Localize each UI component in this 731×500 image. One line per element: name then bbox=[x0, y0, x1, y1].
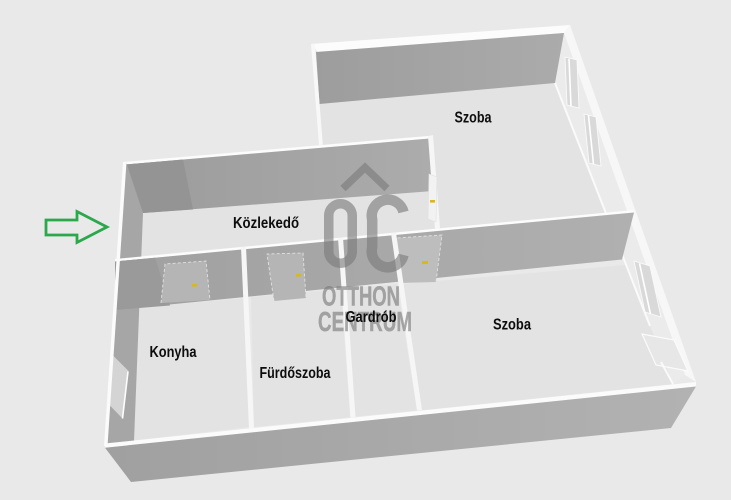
svg-text:Konyha: Konyha bbox=[150, 344, 197, 361]
svg-text:Fürdőszoba: Fürdőszoba bbox=[260, 365, 331, 382]
svg-text:Szoba: Szoba bbox=[493, 317, 531, 334]
svg-text:Gardrób: Gardrób bbox=[346, 309, 397, 326]
svg-text:Közlekedő: Közlekedő bbox=[233, 215, 299, 232]
svg-text:Szoba: Szoba bbox=[455, 110, 492, 127]
